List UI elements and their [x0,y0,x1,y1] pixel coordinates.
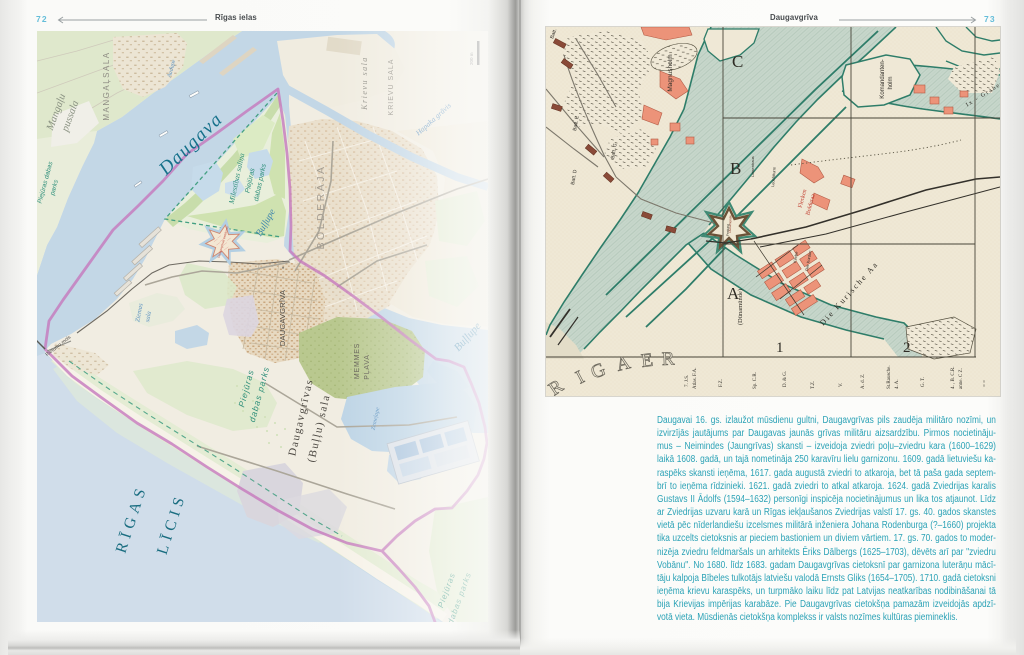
svg-text:(Dünamünde): (Dünamünde) [737,289,744,325]
svg-text:F.Z.: F.Z. [719,379,724,387]
svg-text:Magnusholm: Magnusholm [667,54,674,91]
svg-text:B: B [730,159,741,178]
svg-text:C: C [732,52,743,71]
svg-text:T.Z.: T.Z. [811,381,816,389]
svg-text:2: 2 [903,340,911,356]
svg-text:D. & G.: D. & G. [783,371,788,387]
svg-text:Atlas. F.A.: Atlas. F.A. [693,367,698,389]
svg-text:DAUGAVGRĪVA: DAUGAVGRĪVA [278,290,287,346]
svg-text:St.Rausche.: St.Rausche. [887,365,892,389]
svg-text:A. d. Z.: A. d. Z. [861,374,866,389]
svg-text:R: R [661,349,675,370]
svg-text:Dünamünde: Dünamünde [728,215,733,233]
svg-text:V.: V. [839,383,844,387]
svg-text:holm: holm [888,76,894,89]
svg-text:anne. C Z.: anne. C Z. [959,368,964,389]
svg-text:MANGAĻSALA: MANGAĻSALA [102,51,111,120]
svg-text:1: 1 [776,340,784,356]
svg-text:= =: = = [983,380,988,387]
svg-text:Komandanten-: Komandanten- [880,59,886,98]
svg-text:Lotsenhaus: Lotsenhaus [750,156,755,177]
svg-text:4. A.: 4. A. [895,379,900,389]
svg-text:BOLDERĀJA: BOLDERĀJA [315,165,327,250]
svg-text:7. J.S.: 7. J.S. [685,375,690,387]
svg-text:Sp. C.R.: Sp. C.R. [753,372,758,389]
svg-text:G. T.: G. T. [921,377,926,387]
svg-text:4. , B. C.R.: 4. , B. C.R. [951,366,956,389]
